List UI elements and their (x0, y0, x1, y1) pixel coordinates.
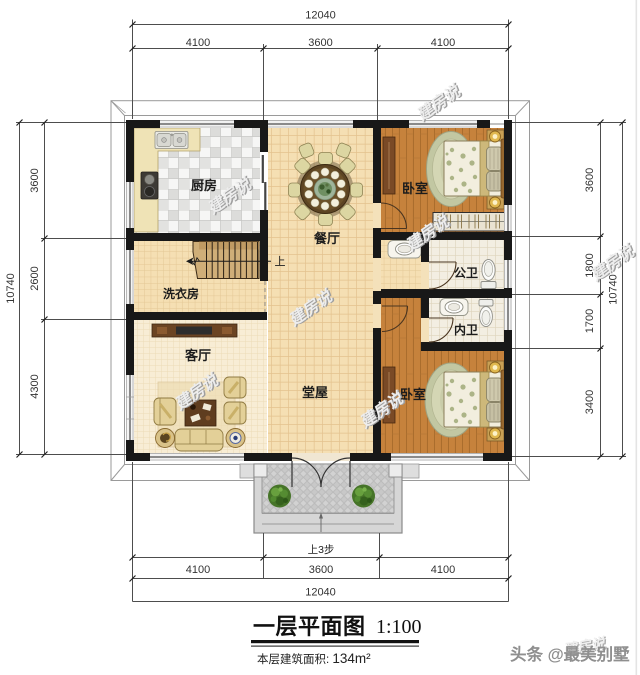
svg-text:10740: 10740 (608, 274, 620, 305)
svg-text:12040: 12040 (305, 10, 336, 22)
svg-text:本层建筑面积: 134m²: 本层建筑面积: 134m² (257, 651, 371, 666)
svg-text:3600: 3600 (309, 564, 333, 576)
svg-text:头条 @最美别墅: 头条 @最美别墅 (510, 644, 630, 664)
svg-text:1:100: 1:100 (376, 616, 422, 638)
svg-text:公卫: 公卫 (454, 266, 478, 280)
svg-text:3600: 3600 (29, 168, 41, 192)
svg-text:10740: 10740 (5, 273, 17, 304)
svg-text:2600: 2600 (29, 266, 41, 290)
svg-text:堂屋: 堂屋 (302, 385, 328, 400)
svg-text:客厅: 客厅 (185, 348, 211, 363)
svg-text:上3步: 上3步 (308, 544, 335, 556)
svg-text:4100: 4100 (186, 564, 210, 576)
svg-text:上: 上 (275, 255, 286, 268)
svg-text:餐厅: 餐厅 (313, 231, 340, 246)
svg-text:一层平面图: 一层平面图 (253, 614, 366, 639)
svg-text:4100: 4100 (431, 37, 455, 49)
svg-text:12040: 12040 (305, 587, 336, 599)
svg-text:3400: 3400 (584, 390, 596, 414)
svg-text:3600: 3600 (308, 37, 332, 49)
svg-text:1700: 1700 (584, 309, 596, 333)
svg-text:4300: 4300 (29, 374, 41, 398)
svg-text:内卫: 内卫 (454, 322, 478, 337)
svg-text:4100: 4100 (186, 37, 210, 49)
svg-text:洗衣房: 洗衣房 (163, 286, 199, 301)
svg-text:卧室: 卧室 (402, 181, 428, 196)
svg-text:厨房: 厨房 (191, 178, 217, 193)
svg-text:4100: 4100 (431, 564, 455, 576)
svg-text:3600: 3600 (584, 168, 596, 192)
